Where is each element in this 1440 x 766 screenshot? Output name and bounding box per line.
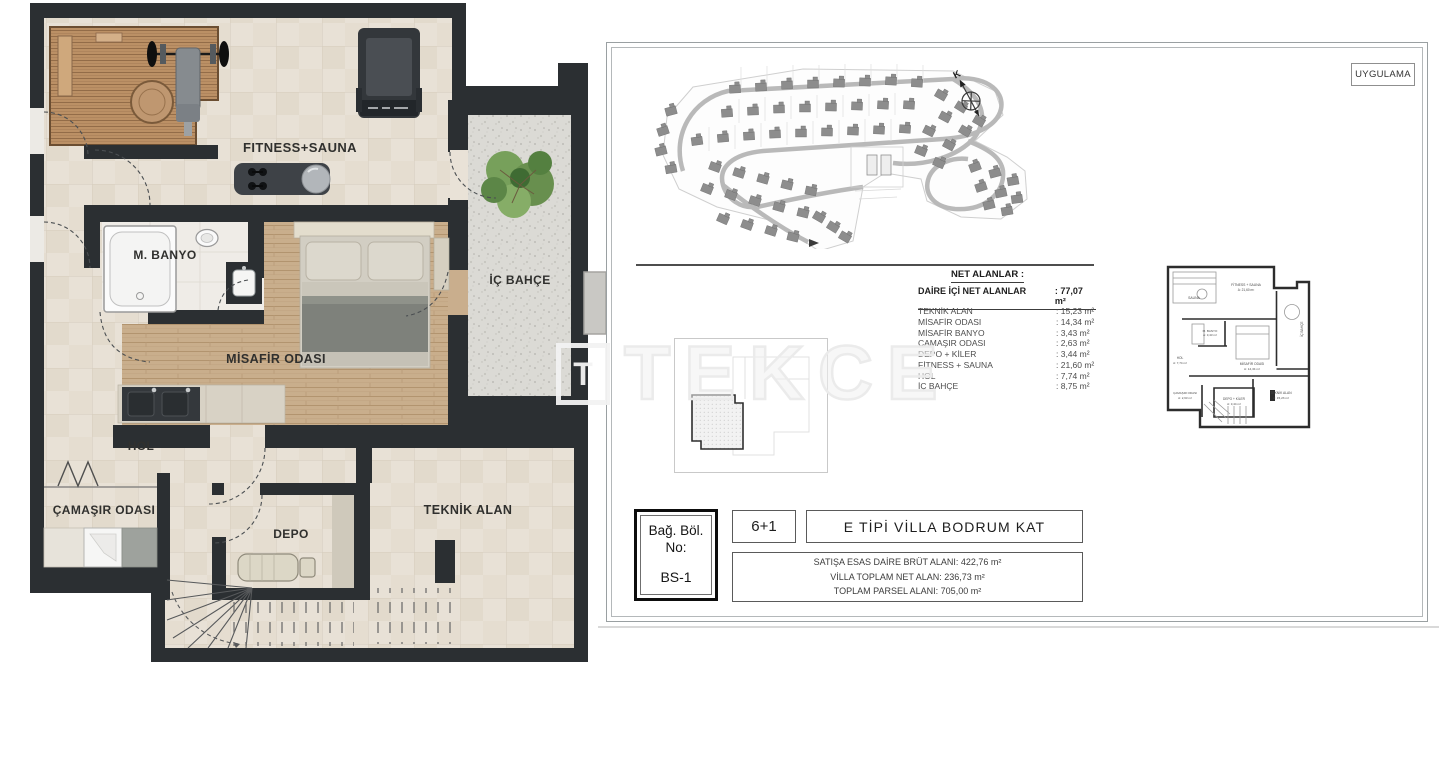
room-label-ic-bahce: İÇ BAHÇE xyxy=(489,272,550,287)
net-row-label: İÇ BAHÇE xyxy=(918,381,1056,392)
room-label-m-banyo: M. BANYO xyxy=(133,248,196,262)
lightwell-shaft xyxy=(584,272,606,334)
bed xyxy=(294,222,449,368)
net-row-value: : 3,44 m² xyxy=(1056,349,1090,360)
mini-label: DEPO + KİLER xyxy=(1223,396,1246,401)
mini-label: HOL xyxy=(1177,356,1184,360)
mini-floor-plan: SAUNA FİTNESS + SAUNA A: 21,60 m² M. BAN… xyxy=(1164,254,1314,449)
washbasin xyxy=(196,230,218,247)
mini-label: A: 15,23 m² xyxy=(1273,396,1289,400)
unit-label-line2: No: xyxy=(665,540,686,557)
mini-label: SAUNA xyxy=(1188,296,1200,300)
gym-mat-icon xyxy=(234,163,330,195)
net-areas-row: İÇ BAHÇE : 8,75 m² xyxy=(918,381,1096,392)
mini-label: A: 2,63 m² xyxy=(1178,396,1192,400)
screenshot-root: FITNESS+SAUNA M. BANYO MİSAFİR ODASI İÇ … xyxy=(0,0,1440,766)
net-areas-row: HOL : 7,74 m² xyxy=(918,371,1096,382)
key-plan-footprint xyxy=(692,395,743,449)
hatch-zone-2 xyxy=(372,588,460,644)
mini-label: TEKNİK ALAN xyxy=(1270,390,1292,395)
net-areas-row: MİSAFİR ODASI : 14,34 m² xyxy=(918,317,1096,328)
hatch-zone-1 xyxy=(228,602,354,646)
net-areas-subtitle-value: : 77,07 m² xyxy=(1055,286,1096,306)
area-summary-box: SATIŞA ESAS DAİRE BRÜT ALANI: 422,76 m² … xyxy=(732,552,1083,602)
room-label-teknik-alan: TEKNİK ALAN xyxy=(424,502,513,517)
panel-underline xyxy=(598,626,1439,628)
room-count-box: 6+1 xyxy=(732,510,796,543)
net-row-value: : 8,75 m² xyxy=(1056,381,1090,392)
net-row-value: : 3,43 m² xyxy=(1056,328,1090,339)
net-row-label: FİTNESS + SAUNA xyxy=(918,360,1056,371)
net-areas-row: MİSAFİR BANYO : 3,43 m² xyxy=(918,328,1096,339)
net-row-value: : 7,74 m² xyxy=(1056,371,1090,382)
net-row-value: : 14,34 m² xyxy=(1056,317,1094,328)
net-areas-row: TEKNİK ALAN : 15,23 m² xyxy=(918,306,1096,317)
net-areas-row: FİTNESS + SAUNA : 21,60 m² xyxy=(918,360,1096,371)
net-areas-row: DEPO + KİLER : 3,44 m² xyxy=(918,349,1096,360)
room-label-hol: HOL xyxy=(128,439,155,453)
mini-label: ÇAMAŞIR ODASI xyxy=(1173,391,1197,395)
net-row-label: HOL xyxy=(918,371,1056,382)
compass-icon: K xyxy=(941,59,1001,134)
mini-label: FİTNESS + SAUNA xyxy=(1231,282,1262,287)
net-row-value: : 2,63 m² xyxy=(1056,338,1090,349)
room-label-misafir-odasi: MİSAFİR ODASI xyxy=(226,351,326,366)
net-areas-title-text: NET ALANLAR : xyxy=(951,269,1024,283)
room-label-camasir-odasi: ÇAMAŞIR ODASI xyxy=(53,503,156,517)
treadmill-icon xyxy=(356,28,422,118)
net-row-value: : 15,23 m² xyxy=(1056,306,1094,317)
net-areas-subtitle: DAİRE İÇİ NET ALANLAR xyxy=(918,286,1055,306)
vanity-sink xyxy=(226,262,262,304)
svg-text:K: K xyxy=(952,68,963,81)
floor-plan: FITNESS+SAUNA M. BANYO MİSAFİR ODASI İÇ … xyxy=(0,0,612,766)
net-areas-title: NET ALANLAR : xyxy=(918,269,1024,280)
net-areas-row: ÇAMAŞIR ODASI : 2,63 m² xyxy=(918,338,1096,349)
mini-label: A: 21,60 m² xyxy=(1238,288,1254,292)
counter-sink xyxy=(118,385,285,423)
net-row-label: TEKNİK ALAN xyxy=(918,306,1056,317)
drawing-panel: K UYGULAMA NET ALANLAR : DAİRE İÇİ NET A… xyxy=(606,42,1428,622)
mini-label: A: 3,44 m² xyxy=(1227,402,1241,406)
area-line-net: VİLLA TOPLAM NET ALAN: 236,73 m² xyxy=(830,570,985,585)
net-row-value: : 21,60 m² xyxy=(1056,360,1094,371)
unit-number: BS-1 xyxy=(660,569,691,587)
net-areas-table: TEKNİK ALAN : 15,23 m² MİSAFİR ODASI : 1… xyxy=(918,306,1096,392)
net-row-label: ÇAMAŞIR ODASI xyxy=(918,338,1056,349)
drawing-title-box: E TİPİ VİLLA BODRUM KAT xyxy=(806,510,1083,543)
mini-label: İÇ BAHÇE xyxy=(1299,321,1304,336)
mini-label: MİSAFİR ODASI xyxy=(1240,361,1265,366)
stamp-uygulama: UYGULAMA xyxy=(1351,63,1415,86)
unit-number-box: Bağ. Böl. No: BS-1 xyxy=(634,509,718,601)
mini-label: A: 3,43 m² xyxy=(1203,333,1217,337)
net-row-label: DEPO + KİLER xyxy=(918,349,1056,360)
area-line-brut: SATIŞA ESAS DAİRE BRÜT ALANI: 422,76 m² xyxy=(814,555,1002,570)
unit-label-line1: Bağ. Böl. xyxy=(649,523,704,540)
net-row-label: MİSAFİR BANYO xyxy=(918,328,1056,339)
key-plan xyxy=(674,338,828,473)
mini-label: A: 14,34 m² xyxy=(1244,367,1260,371)
area-line-parsel: TOPLAM PARSEL ALANI: 705,00 m² xyxy=(834,584,981,599)
table-divider-line xyxy=(636,264,1094,266)
room-label-fitness-sauna: FITNESS+SAUNA xyxy=(243,140,357,155)
bathtub xyxy=(104,226,176,312)
net-row-label: MİSAFİR ODASI xyxy=(918,317,1056,328)
room-label-depo: DEPO xyxy=(273,527,309,541)
mini-label: A: 7,74 m² xyxy=(1173,361,1187,365)
